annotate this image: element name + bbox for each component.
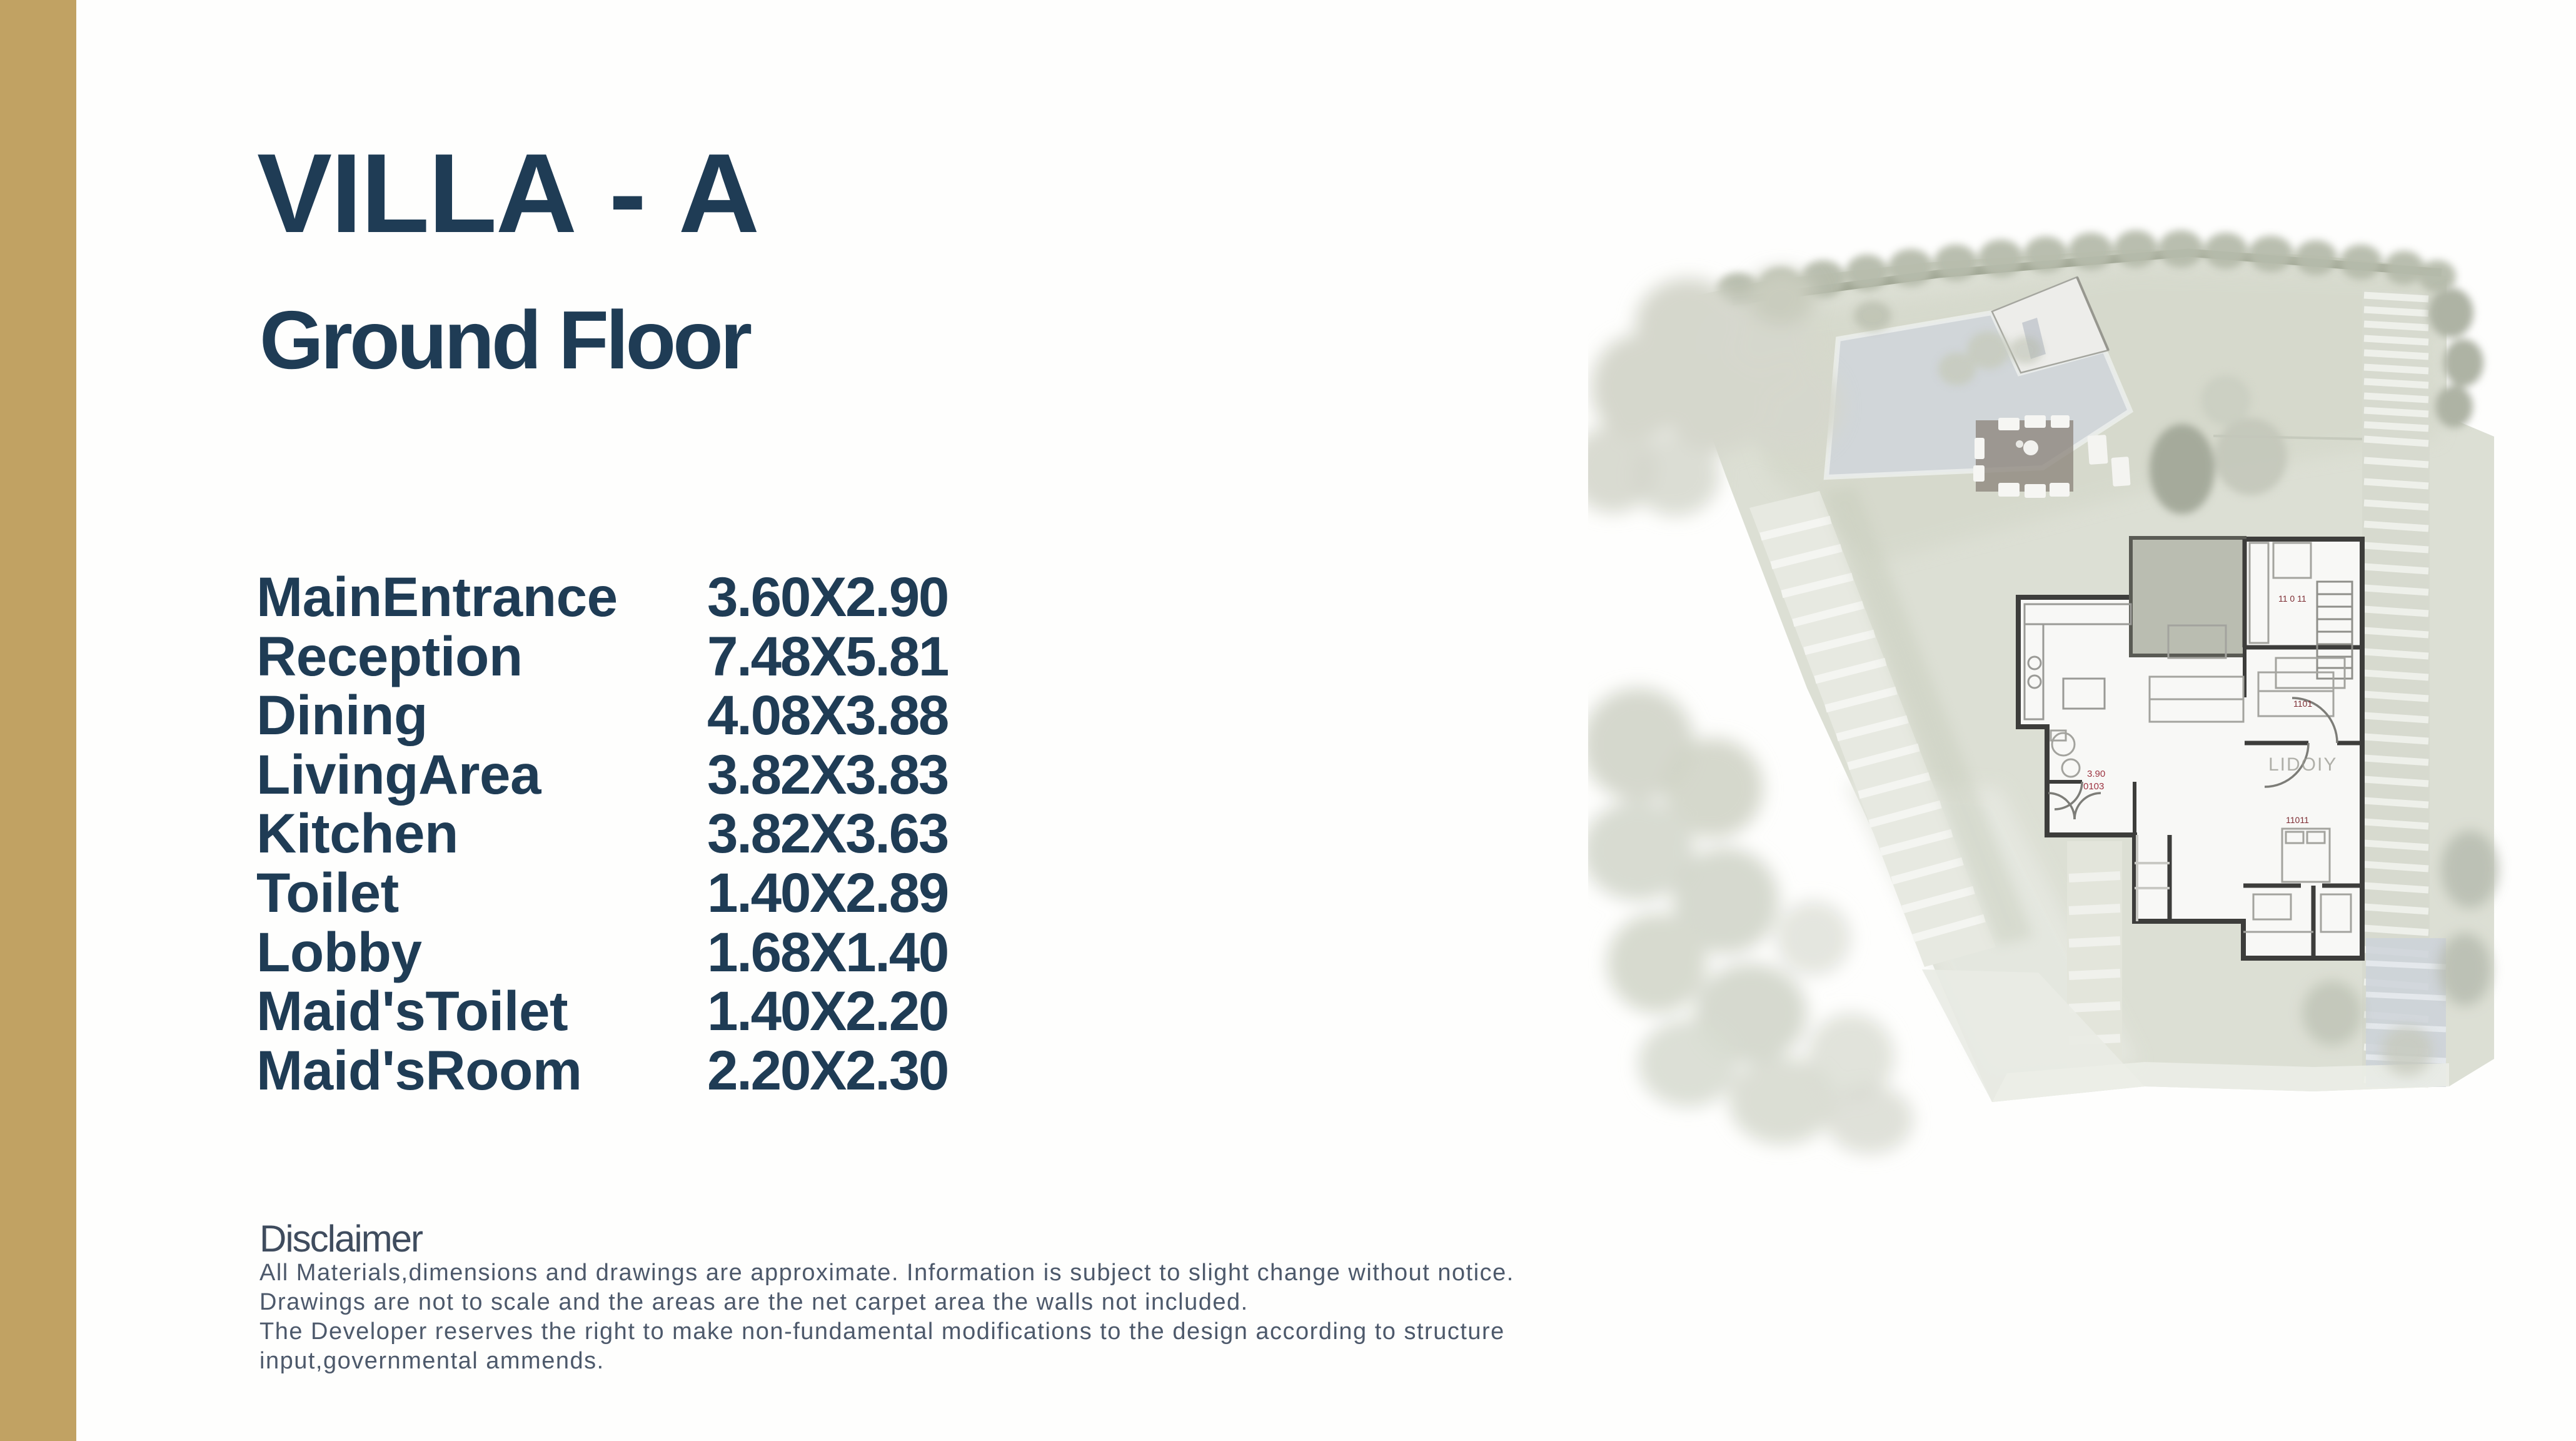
svg-text:11011: 11011 — [2286, 815, 2309, 825]
svg-text:11 0 11: 11 0 11 — [2278, 594, 2307, 604]
svg-text:LIDOIY: LIDOIY — [2268, 754, 2337, 775]
svg-text:0103: 0103 — [2083, 781, 2104, 792]
svg-text:3.90: 3.90 — [2087, 769, 2105, 779]
svg-text:1101: 1101 — [2293, 699, 2312, 709]
